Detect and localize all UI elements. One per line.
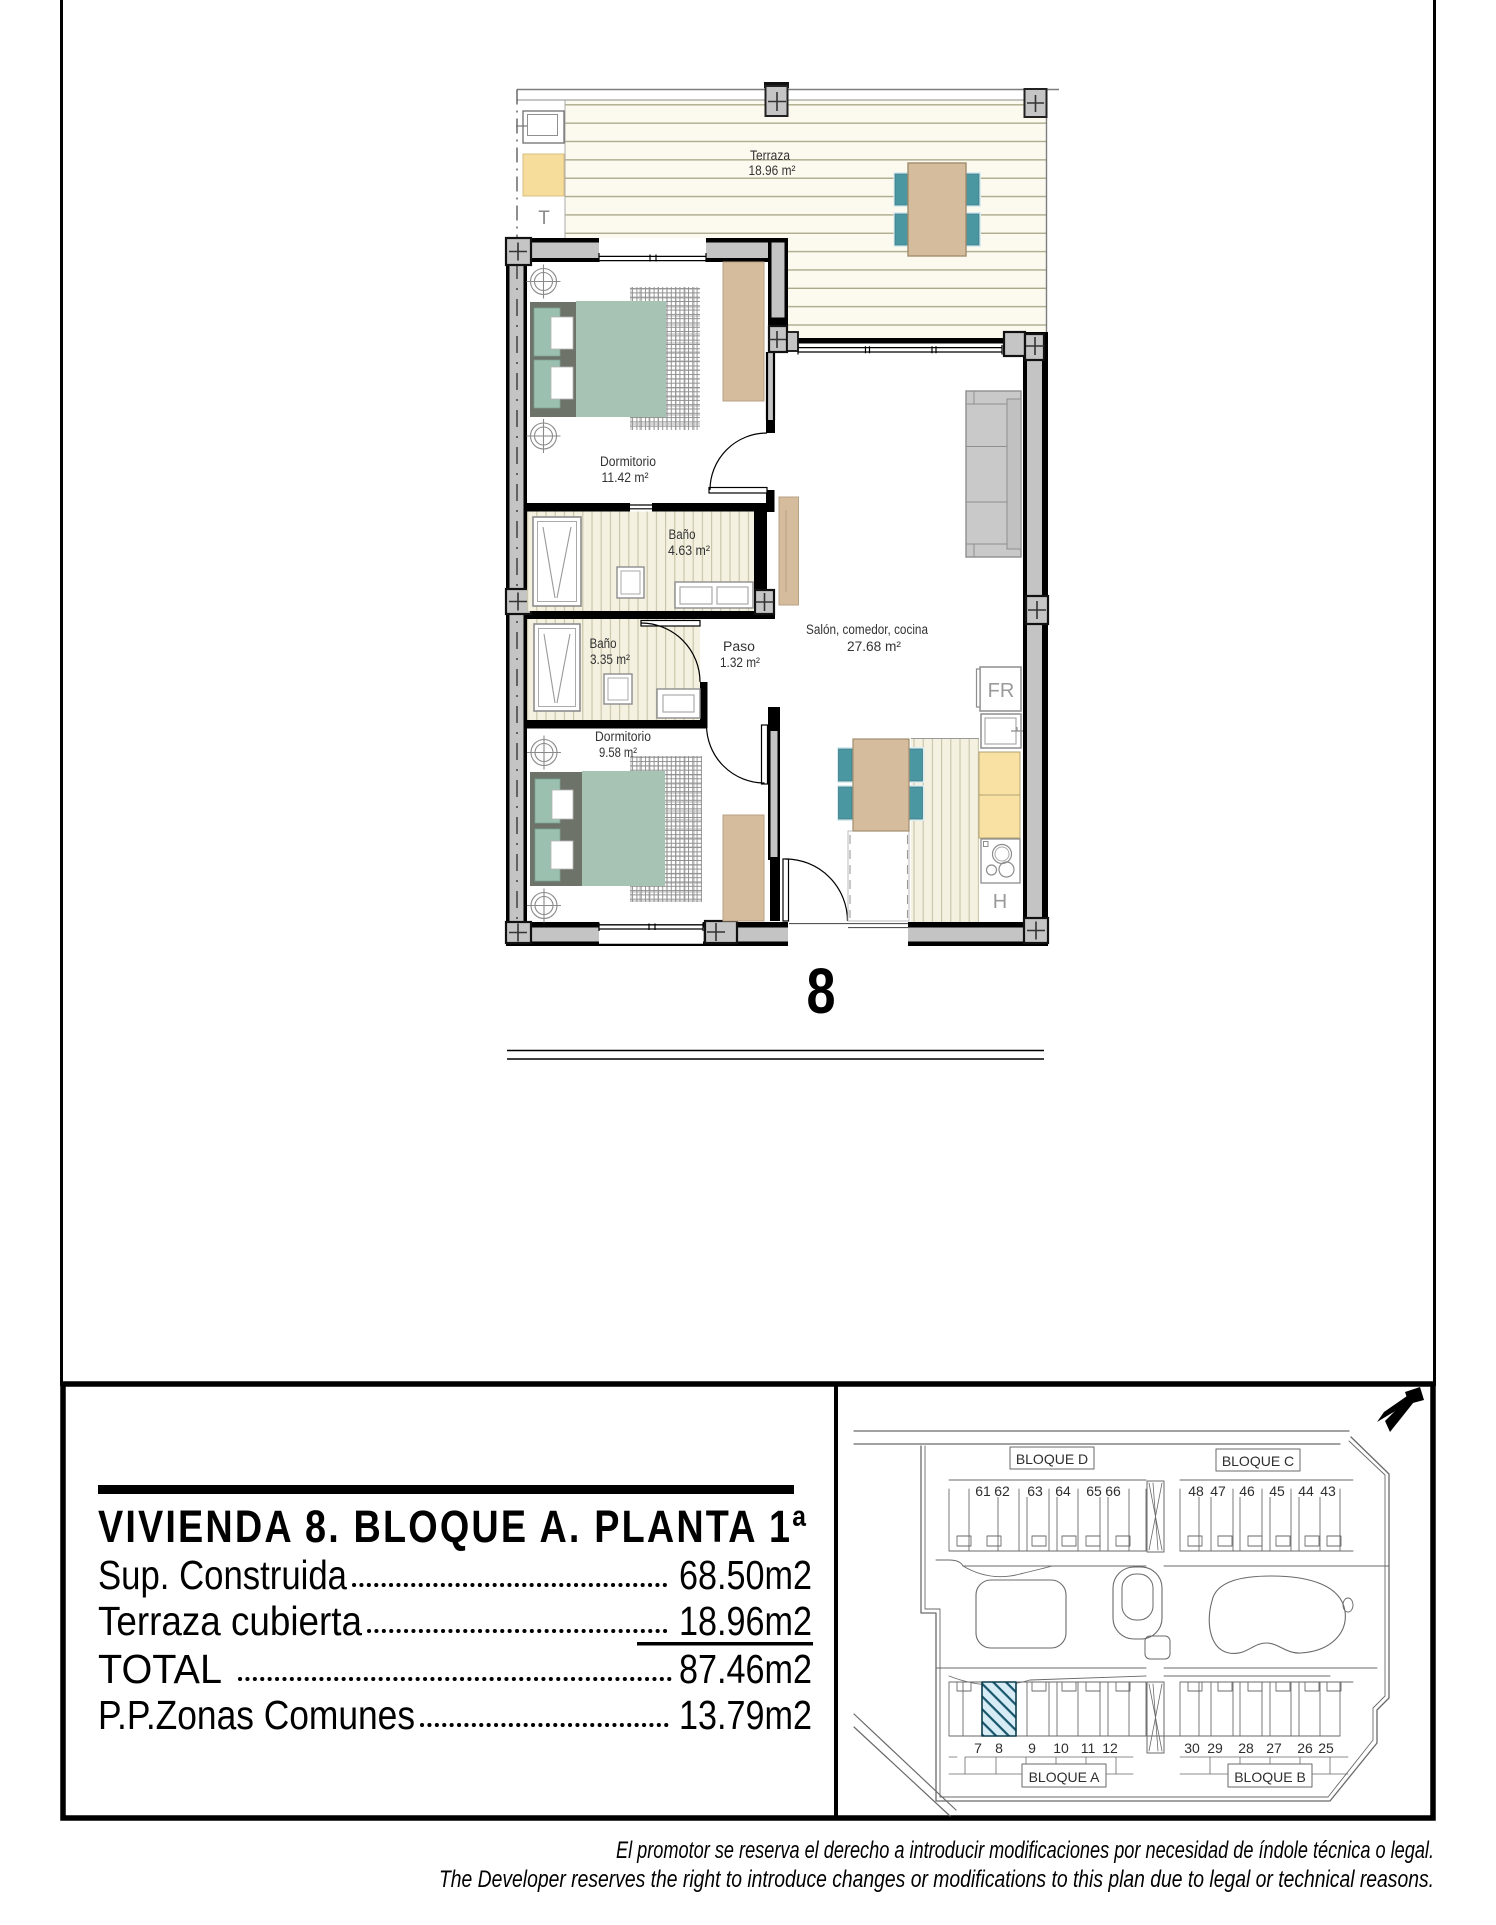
svg-text:25: 25: [1318, 1740, 1334, 1756]
svg-text:65: 65: [1086, 1483, 1102, 1499]
svg-text:64: 64: [1055, 1483, 1071, 1499]
svg-text:El promotor se reserva el dere: El promotor se reserva el derecho a intr…: [616, 1837, 1434, 1864]
svg-text:Terraza: Terraza: [750, 148, 790, 163]
svg-text:FR: FR: [988, 680, 1015, 702]
svg-text:7: 7: [974, 1740, 982, 1756]
svg-text:1.32 m²: 1.32 m²: [720, 655, 760, 670]
svg-text:30: 30: [1184, 1740, 1200, 1756]
svg-text:Paso: Paso: [723, 639, 755, 654]
svg-text:12: 12: [1102, 1740, 1118, 1756]
svg-text:28: 28: [1238, 1740, 1254, 1756]
svg-text:9.58 m²: 9.58 m²: [599, 745, 637, 760]
svg-text:45: 45: [1269, 1483, 1285, 1499]
svg-text:61: 61: [975, 1483, 991, 1499]
svg-text:66: 66: [1105, 1483, 1121, 1499]
svg-text:47: 47: [1210, 1483, 1226, 1499]
svg-text:48: 48: [1188, 1483, 1204, 1499]
svg-text:8: 8: [807, 955, 836, 1027]
svg-text:Salón, comedor, cocina: Salón, comedor, cocina: [806, 622, 928, 637]
svg-text:13.79m2: 13.79m2: [679, 1692, 812, 1738]
svg-text:44: 44: [1298, 1483, 1314, 1499]
svg-text:62: 62: [994, 1483, 1010, 1499]
svg-text:BLOQUE C: BLOQUE C: [1222, 1453, 1294, 1469]
svg-text:87.46m2: 87.46m2: [679, 1646, 812, 1692]
svg-text:10: 10: [1053, 1740, 1069, 1756]
svg-text:P.P.Zonas Comunes: P.P.Zonas Comunes: [98, 1692, 415, 1738]
svg-text:BLOQUE B: BLOQUE B: [1234, 1769, 1306, 1785]
svg-text:68.50m2: 68.50m2: [679, 1552, 812, 1598]
svg-text:9: 9: [1028, 1740, 1036, 1756]
svg-text:Dormitorio: Dormitorio: [600, 454, 656, 469]
svg-text:The Developer reserves the rig: The Developer reserves the right to intr…: [439, 1866, 1434, 1893]
svg-text:27.68 m²: 27.68 m²: [847, 639, 902, 654]
svg-text:26: 26: [1297, 1740, 1313, 1756]
svg-text:43: 43: [1320, 1483, 1336, 1499]
svg-text:Dormitorio: Dormitorio: [595, 729, 651, 744]
svg-text:27: 27: [1266, 1740, 1282, 1756]
svg-text:18.96m2: 18.96m2: [679, 1598, 812, 1644]
svg-text:18.96 m²: 18.96 m²: [749, 163, 796, 178]
svg-text:Terraza cubierta: Terraza cubierta: [98, 1598, 362, 1644]
svg-text:Baño: Baño: [590, 636, 617, 651]
svg-text:4.63 m²: 4.63 m²: [668, 543, 710, 558]
svg-text:BLOQUE D: BLOQUE D: [1016, 1451, 1088, 1467]
svg-text:63: 63: [1027, 1483, 1043, 1499]
svg-text:29: 29: [1207, 1740, 1223, 1756]
svg-text:11: 11: [1081, 1740, 1096, 1756]
svg-text:H: H: [993, 891, 1007, 913]
svg-text:46: 46: [1239, 1483, 1255, 1499]
svg-text:Baño: Baño: [669, 527, 696, 542]
svg-text:BLOQUE A: BLOQUE A: [1029, 1769, 1100, 1785]
svg-text:3.35 m²: 3.35 m²: [590, 652, 630, 667]
svg-text:T: T: [538, 208, 550, 229]
svg-text:8: 8: [995, 1740, 1003, 1756]
svg-text:Sup. Construida: Sup. Construida: [98, 1552, 347, 1598]
svg-text:11.42 m²: 11.42 m²: [602, 470, 649, 485]
svg-text:TOTAL: TOTAL: [98, 1646, 222, 1692]
